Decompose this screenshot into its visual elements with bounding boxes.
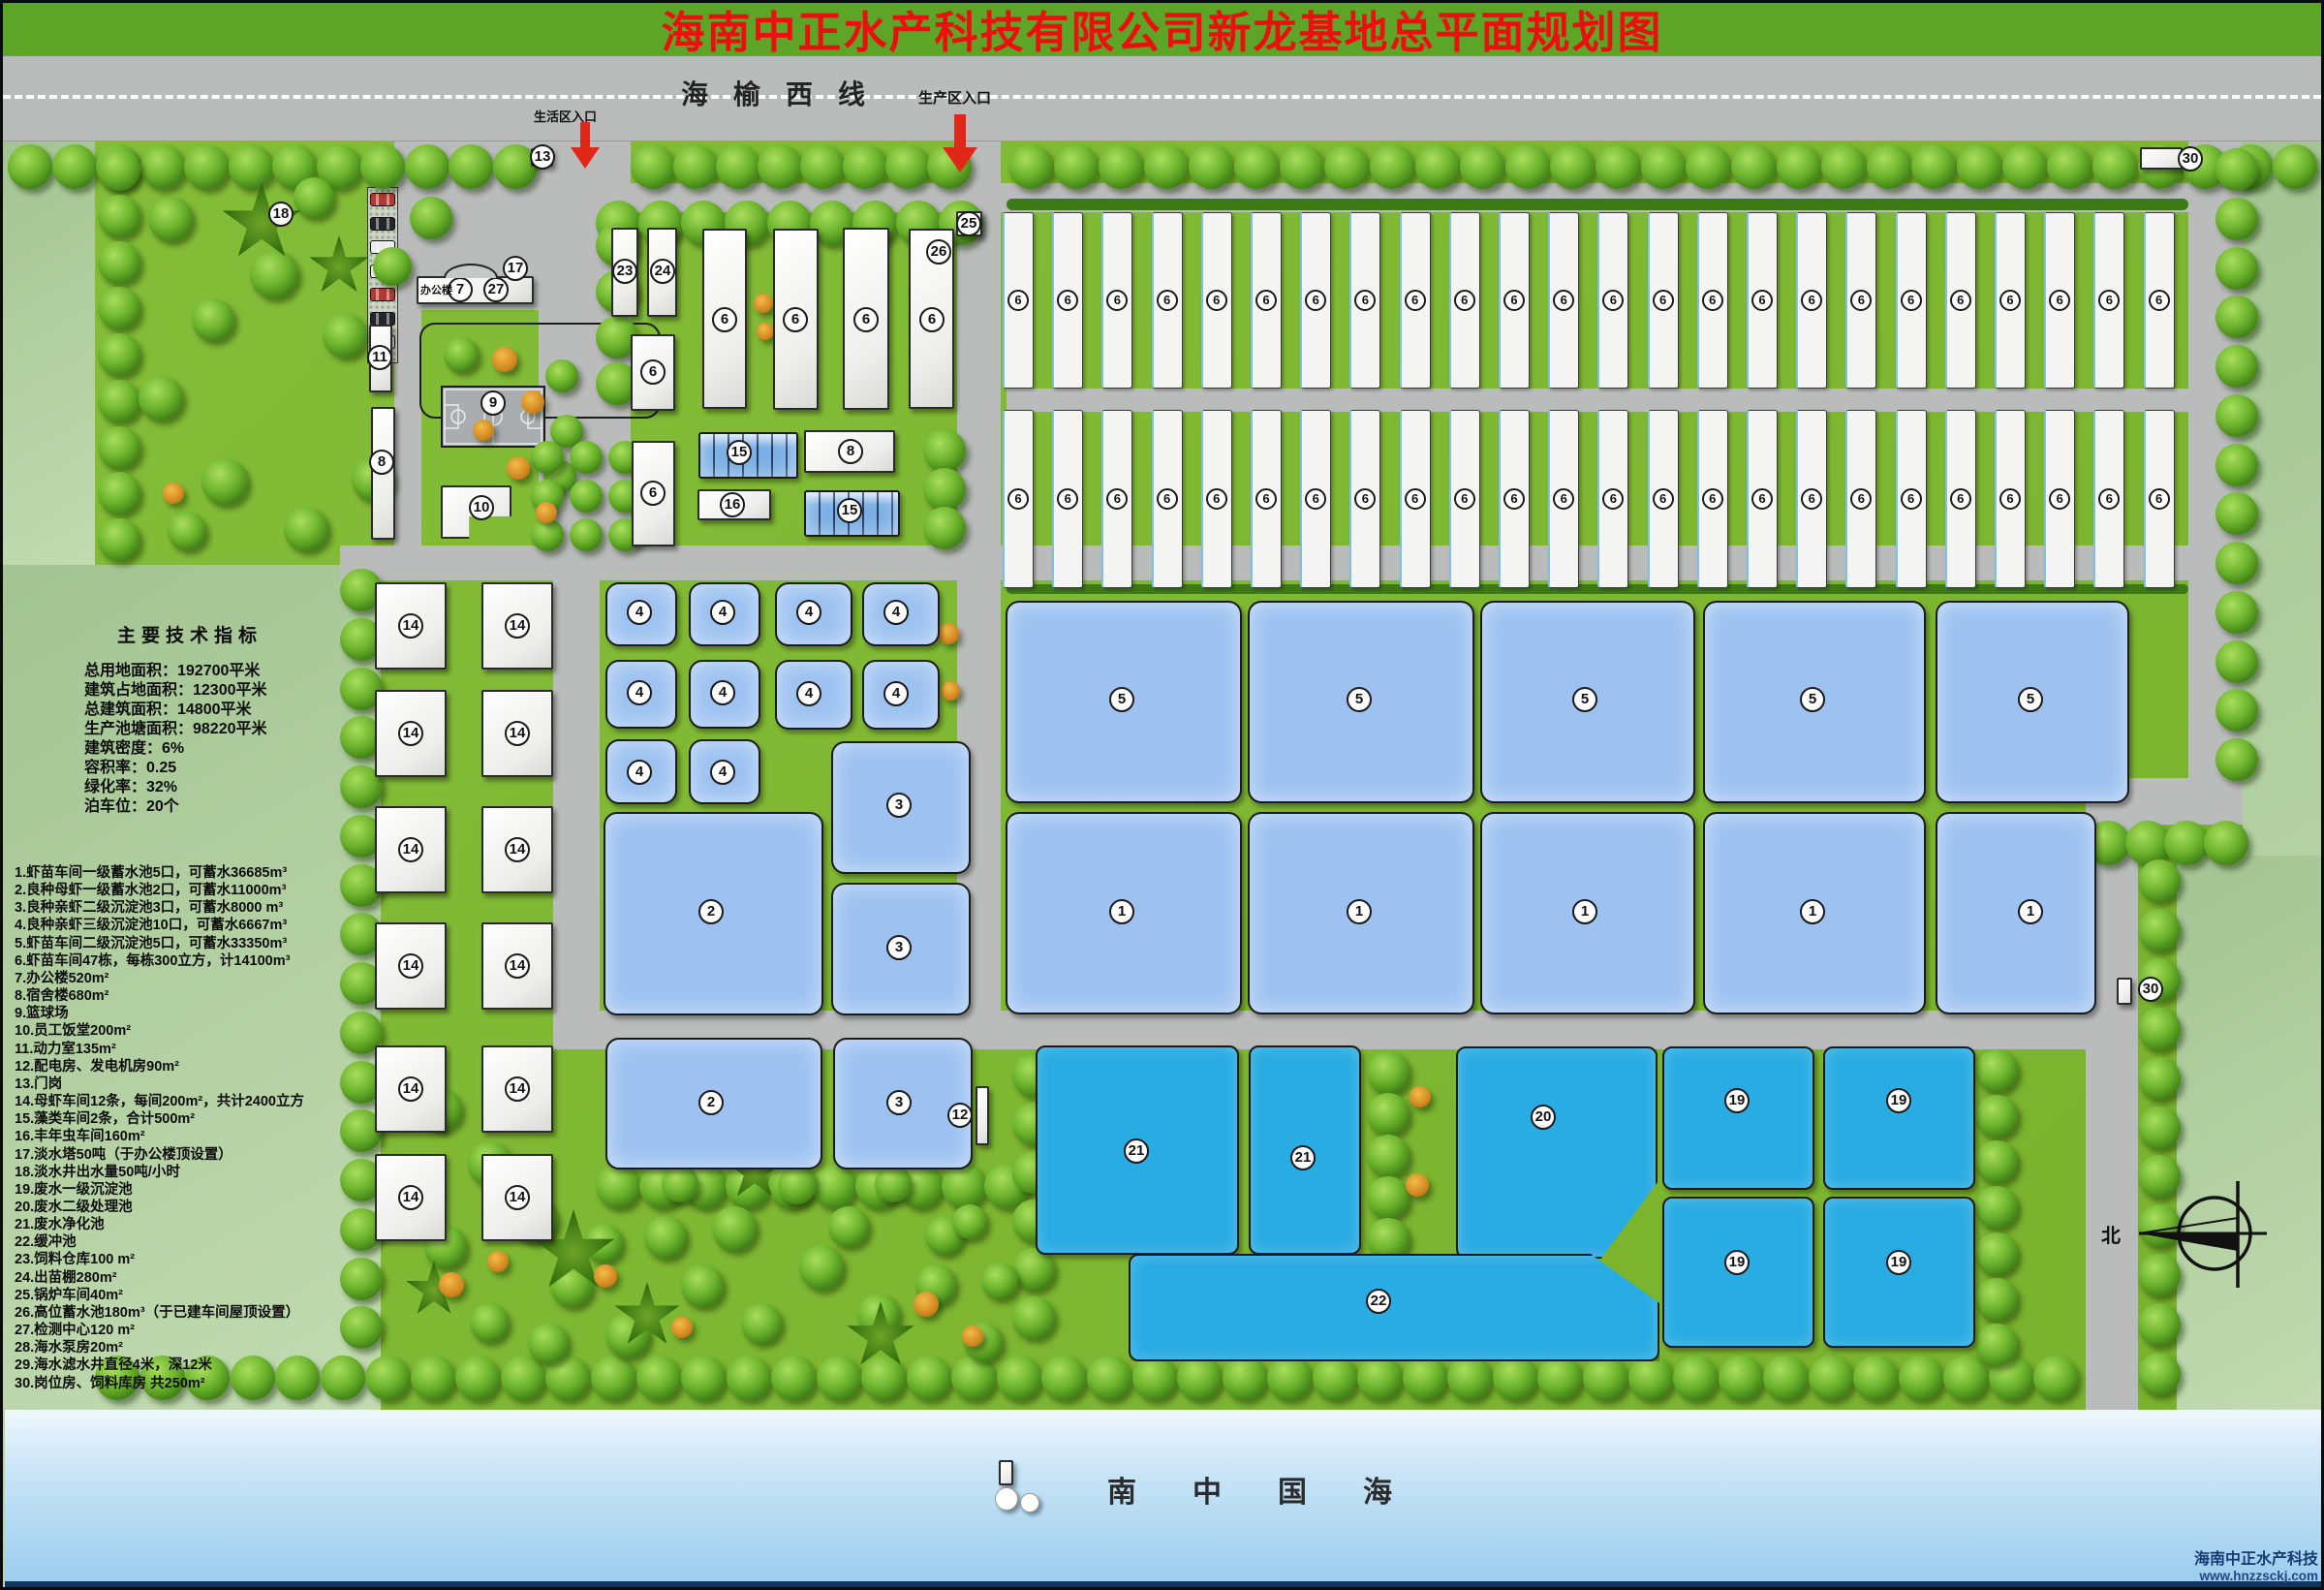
tree-icon — [2216, 591, 2258, 634]
car-icon — [370, 288, 395, 301]
indicator-line: 绿化率：32% — [84, 778, 375, 797]
car-icon — [370, 312, 395, 326]
map-label-13: 13 — [530, 144, 555, 170]
tree-icon — [570, 518, 603, 551]
map-label-6: 6 — [1901, 488, 1922, 510]
tree-icon — [1087, 1356, 1131, 1400]
wastewater-pond — [1823, 1046, 1975, 1190]
tree-icon — [1809, 1356, 1853, 1400]
map-label-30: 30 — [2178, 146, 2203, 171]
indicator-line: 泊车位：20个 — [84, 797, 375, 817]
tree-icon — [938, 623, 959, 644]
wastewater-pond — [1662, 1046, 1814, 1190]
map-label-6: 6 — [1206, 290, 1227, 311]
map-label-17: 17 — [503, 256, 528, 281]
map-label-5: 5 — [1572, 687, 1597, 712]
map-label-6: 6 — [2098, 290, 2120, 311]
road-vertical-west-ponds — [553, 546, 600, 1049]
tree-icon — [373, 247, 412, 286]
tree-icon — [2138, 909, 2181, 951]
tree-icon — [2138, 1303, 2181, 1346]
map-label-3: 3 — [886, 1090, 912, 1115]
tree-icon — [521, 390, 544, 414]
map-label-6: 6 — [1405, 290, 1426, 311]
indicator-line: 生产池塘面积：98220平米 — [84, 720, 375, 739]
tree-icon — [673, 144, 718, 189]
tree-icon — [1460, 144, 1504, 189]
tree-icon — [771, 1356, 816, 1400]
entrance-label-production: 生产区入口 — [918, 87, 991, 108]
legend-item: 5.虾苗车间二级沉淀池5口，可蓄水33350m³ — [15, 935, 383, 952]
legend-item: 28.海水泵房20m² — [15, 1339, 383, 1356]
legend-item: 2.良种母虾一级蓄水池2口，可蓄水11000m³ — [15, 882, 383, 899]
tree-icon — [411, 1356, 455, 1400]
tree-icon — [712, 1206, 757, 1251]
map-label-14: 14 — [398, 837, 423, 862]
building-generator-room — [976, 1086, 989, 1145]
tree-icon — [439, 1272, 464, 1297]
map-label-6: 6 — [1950, 290, 1971, 311]
map-label-6: 6 — [1653, 488, 1674, 510]
tree-icon — [1821, 144, 1866, 189]
map-label-6: 6 — [1106, 488, 1128, 510]
map-label-18: 18 — [268, 202, 294, 227]
tree-icon — [923, 507, 966, 549]
tree-icon — [1410, 1086, 1431, 1107]
tree-icon — [8, 144, 52, 189]
road-horizontal-south — [600, 1011, 2138, 1049]
building-guard-feed-store — [2140, 147, 2183, 170]
legend-item: 11.动力室135m² — [15, 1041, 383, 1058]
map-label-6: 6 — [1454, 488, 1475, 510]
tree-icon — [1686, 144, 1730, 189]
tree-icon — [192, 298, 234, 341]
tree-icon — [294, 177, 334, 218]
tree-icon — [727, 1356, 771, 1400]
tree-icon — [962, 1325, 983, 1347]
tree-icon — [444, 337, 479, 372]
map-label-14: 14 — [505, 1185, 530, 1210]
map-label-8: 8 — [369, 450, 394, 475]
tree-icon — [2216, 738, 2258, 781]
tree-icon — [907, 1356, 951, 1400]
brand-company: 海南中正水产科技 — [2086, 1551, 2318, 1568]
tree-icon — [98, 241, 140, 284]
tree-icon — [981, 1263, 1018, 1299]
tree-icon — [284, 507, 328, 551]
map-label-6: 6 — [1702, 488, 1723, 510]
tree-icon — [2138, 1057, 2181, 1100]
indicator-line: 总建筑面积：14800平米 — [84, 701, 375, 720]
tree-icon — [758, 144, 802, 189]
filter-well — [1020, 1493, 1039, 1512]
map-label-4: 4 — [710, 600, 735, 625]
tree-icon — [148, 197, 193, 241]
map-label-10: 10 — [469, 495, 494, 520]
legend-item: 29.海水滤水井直径4米，深12米 — [15, 1356, 383, 1374]
tree-icon — [2164, 821, 2209, 865]
legend-item: 24.出苗棚280m² — [15, 1269, 383, 1287]
tree-icon — [1583, 1356, 1627, 1400]
map-label-14: 14 — [505, 721, 530, 746]
map-label-6: 6 — [853, 307, 879, 332]
tree-icon — [1777, 144, 1821, 189]
map-label-22: 22 — [1366, 1289, 1391, 1314]
tree-icon — [1975, 1232, 2018, 1275]
tree-icon — [757, 323, 774, 340]
tree-icon — [594, 1264, 617, 1288]
tree-icon — [843, 144, 887, 189]
tree-icon — [716, 144, 760, 189]
tree-icon — [98, 148, 140, 191]
map-label-6: 6 — [712, 307, 737, 332]
tree-icon — [52, 144, 97, 189]
pond — [1936, 812, 2096, 1014]
legend-item: 12.配电房、发电机房90m² — [15, 1058, 383, 1076]
tree-icon — [1975, 1140, 2018, 1183]
tree-icon — [545, 359, 578, 392]
map-label-6: 6 — [640, 359, 666, 385]
tree-icon — [741, 1303, 782, 1344]
tree-icon — [1403, 1356, 1447, 1400]
indicator-line: 建筑密度：6% — [84, 739, 375, 759]
tree-icon — [1505, 144, 1550, 189]
map-label-4: 4 — [796, 600, 821, 625]
map-label-14: 14 — [505, 1076, 530, 1102]
tree-icon — [570, 480, 603, 513]
map-label-14: 14 — [505, 613, 530, 639]
road-between-workshop-rows — [1007, 389, 2243, 412]
road-vertical-office — [394, 310, 421, 565]
legend-item: 26.高位蓄水池180m³（于已建车间屋顶设置） — [15, 1304, 383, 1322]
tree-icon — [1357, 1356, 1402, 1400]
map-label-9: 9 — [480, 390, 506, 416]
map-label-4: 4 — [883, 681, 909, 706]
tree-icon — [817, 1356, 861, 1400]
map-label-6: 6 — [1553, 290, 1574, 311]
legend-item: 23.饲料仓库100 m² — [15, 1251, 383, 1268]
map-label-26: 26 — [926, 239, 951, 265]
map-label-6: 6 — [1454, 290, 1475, 311]
tree-icon — [1234, 144, 1279, 189]
map-label-5: 5 — [1109, 687, 1134, 712]
legend-item: 20.废水二级处理池 — [15, 1199, 383, 1216]
map-label-6: 6 — [1653, 290, 1674, 311]
map-label-12: 12 — [947, 1103, 973, 1128]
tree-icon — [1054, 144, 1099, 189]
tree-icon — [487, 1251, 509, 1272]
site-plan-canvas: 6666666666666666666666666666666666666666… — [0, 0, 2324, 1590]
tree-icon — [323, 313, 367, 358]
tree-icon — [1957, 144, 2001, 189]
legend-item: 19.废水一级沉淀池 — [15, 1181, 383, 1199]
legend-item: 14.母虾车间12条，每间200m²，共计2400立方 — [15, 1093, 383, 1110]
tree-icon — [2002, 144, 2047, 189]
tree-icon — [2125, 821, 2170, 865]
tree-icon — [828, 1206, 869, 1247]
tree-icon — [1313, 1356, 1357, 1400]
legend-item: 3.良种亲虾二级沉淀池3口，可蓄水8000 m³ — [15, 899, 383, 917]
tree-icon — [952, 1204, 987, 1239]
map-label-6: 6 — [1751, 290, 1773, 311]
compass-north-label: 北 — [2101, 1220, 2121, 1248]
tree-icon — [1144, 144, 1189, 189]
map-label-6: 6 — [1503, 488, 1525, 510]
map-label-2: 2 — [698, 899, 724, 924]
tree-icon — [1975, 1049, 2018, 1092]
map-label-1: 1 — [1109, 899, 1134, 924]
indicators-list: 总用地面积：192700平米建筑占地面积：12300平米总建筑面积：14800平… — [84, 662, 375, 817]
map-label-6: 6 — [2049, 290, 2070, 311]
map-label-6: 6 — [1157, 488, 1178, 510]
map-label-24: 24 — [650, 259, 675, 284]
map-label-6: 6 — [1354, 488, 1376, 510]
tree-icon — [531, 518, 564, 551]
map-label-14: 14 — [398, 1185, 423, 1210]
map-label-4: 4 — [627, 680, 652, 705]
tree-icon — [1899, 1356, 1943, 1400]
tree-icon — [2216, 345, 2258, 388]
car-icon — [370, 217, 395, 231]
tree-icon — [1367, 1135, 1410, 1177]
map-label-5: 5 — [2018, 687, 2043, 712]
tree-icon — [941, 681, 960, 701]
map-label-14: 14 — [398, 721, 423, 746]
tree-icon — [875, 1166, 912, 1202]
sea-name: 南中国海 — [1107, 1468, 1448, 1511]
map-label-6: 6 — [1255, 488, 1277, 510]
tree-icon — [98, 426, 140, 469]
tree-icon — [662, 1166, 698, 1202]
map-label-4: 4 — [710, 760, 735, 785]
tree-icon — [1763, 1356, 1808, 1400]
tree-icon — [2138, 1353, 2181, 1395]
tree-icon — [1415, 144, 1460, 189]
tree-icon — [98, 380, 140, 422]
map-label-6: 6 — [2149, 290, 2170, 311]
map-label-1: 1 — [2018, 899, 2043, 924]
legend-item: 6.虾苗车间47栋，每栋300立方，计14100m³ — [15, 952, 383, 970]
tree-icon — [531, 441, 564, 474]
tree-icon — [596, 1164, 640, 1208]
tree-icon — [1975, 1095, 2018, 1138]
map-label-6: 6 — [1801, 488, 1822, 510]
map-label-19: 19 — [1886, 1250, 1911, 1275]
entrance-arrow-living-icon — [571, 122, 600, 171]
tree-icon — [2216, 247, 2258, 290]
map-label-4: 4 — [627, 600, 652, 625]
map-label-6: 6 — [1850, 488, 1872, 510]
map-label-19: 19 — [1886, 1088, 1911, 1113]
map-label-20: 20 — [1531, 1105, 1556, 1130]
legend-item: 7.办公楼520m² — [15, 970, 383, 987]
map-label-2: 2 — [698, 1090, 724, 1115]
tree-icon — [1406, 1173, 1429, 1197]
indicator-line: 建筑占地面积：12300平米 — [84, 681, 375, 701]
map-label-14: 14 — [505, 837, 530, 862]
legend-item: 16.丰年虫车间160m² — [15, 1128, 383, 1145]
map-label-15: 15 — [727, 440, 752, 465]
tree-icon — [681, 1264, 724, 1307]
legend-item: 9.篮球场 — [15, 1005, 383, 1022]
map-label-6: 6 — [2049, 488, 2070, 510]
tree-icon — [501, 1356, 545, 1400]
tree-icon — [636, 1356, 681, 1400]
map-label-4: 4 — [627, 760, 652, 785]
tree-icon — [470, 1303, 509, 1342]
tree-icon — [671, 1317, 693, 1338]
tree-icon — [360, 144, 405, 189]
legend-item: 18.淡水井出水量50吨/小时 — [15, 1164, 383, 1181]
map-label-6: 6 — [1553, 488, 1574, 510]
map-label-21: 21 — [1124, 1138, 1149, 1164]
map-label-6: 6 — [1007, 488, 1029, 510]
tree-icon — [1596, 144, 1640, 189]
legend-item: 13.门岗 — [15, 1076, 383, 1093]
map-label-1: 1 — [1572, 899, 1597, 924]
outside-area-top-left — [3, 140, 95, 567]
tree-icon — [1673, 1356, 1718, 1400]
car-icon — [370, 193, 395, 206]
map-label-6: 6 — [1503, 290, 1525, 311]
legend-item: 25.锅炉车间40m² — [15, 1287, 383, 1304]
highway-name: 海榆西线 — [681, 74, 890, 112]
map-label-6: 6 — [1602, 290, 1624, 311]
wastewater-pond — [1129, 1254, 1659, 1361]
tree-icon — [410, 197, 452, 239]
tree-icon — [1867, 144, 1911, 189]
map-label-14: 14 — [505, 953, 530, 979]
map-label-19: 19 — [1724, 1088, 1750, 1113]
map-label-6: 6 — [783, 307, 808, 332]
tree-icon — [914, 1292, 939, 1317]
map-label-6: 6 — [1354, 290, 1376, 311]
map-label-19: 19 — [1724, 1250, 1750, 1275]
legend-item: 15.藻类车间2条，合计500m² — [15, 1110, 383, 1128]
map-label-1: 1 — [1347, 899, 1372, 924]
tree-icon — [644, 1216, 687, 1259]
tree-icon — [923, 468, 966, 511]
tree-icon — [923, 429, 966, 472]
tree-icon — [778, 1166, 817, 1204]
map-label-6: 6 — [1999, 290, 2021, 311]
legend-list: 1.虾苗车间一级蓄水池5口，可蓄水36685m³2.良种母虾一级蓄水池2口，可蓄… — [15, 864, 383, 1392]
filter-well — [995, 1487, 1018, 1511]
map-label-6: 6 — [1157, 290, 1178, 311]
tree-icon — [2138, 859, 2181, 902]
map-label-6: 6 — [1007, 290, 1029, 311]
map-label-6: 6 — [640, 481, 666, 506]
indicator-line: 容积率：0.25 — [84, 759, 375, 778]
tree-icon — [2138, 1008, 2181, 1050]
map-label-1: 1 — [1800, 899, 1825, 924]
tree-icon — [591, 1356, 635, 1400]
highway: 海榆西线 生活区入口 生产区入口 — [3, 56, 2321, 141]
tree-icon — [98, 333, 140, 376]
tree-icon — [1099, 144, 1143, 189]
tree-icon — [942, 1164, 986, 1208]
tree-icon — [1719, 1356, 1763, 1400]
tree-icon — [812, 1164, 856, 1208]
tree-icon — [449, 144, 493, 189]
tree-icon — [681, 1356, 726, 1400]
legend-item: 30.岗位房、饲料库房 共250m² — [15, 1375, 383, 1392]
map-label-14: 14 — [398, 613, 423, 639]
map-label-4: 4 — [710, 680, 735, 705]
legend-item: 21.废水净化池 — [15, 1216, 383, 1233]
tree-icon — [2092, 144, 2137, 189]
legend-item: 4.良种亲虾三级沉淀池10口，可蓄水6667m³ — [15, 917, 383, 934]
map-label-6: 6 — [1901, 290, 1922, 311]
tree-icon — [492, 347, 517, 372]
hedge-row — [1007, 199, 2188, 210]
map-label-5: 5 — [1347, 687, 1372, 712]
tree-icon — [631, 144, 675, 189]
tree-icon — [1367, 1176, 1410, 1219]
highway-center-line — [3, 95, 2321, 99]
tree-icon — [229, 144, 273, 189]
building-guard-feed-store — [2117, 978, 2132, 1005]
tree-icon — [168, 512, 206, 550]
map-label-6: 6 — [1057, 290, 1078, 311]
tree-icon — [1641, 144, 1686, 189]
entrance-arrow-production-icon — [943, 114, 977, 174]
tree-icon — [2216, 198, 2258, 240]
tree-icon — [1367, 1093, 1410, 1136]
tree-icon — [98, 518, 140, 561]
map-label-6: 6 — [1751, 488, 1773, 510]
tree-icon — [2216, 640, 2258, 683]
tree-icon — [1008, 144, 1053, 189]
map-label-6: 6 — [1702, 290, 1723, 311]
map-label-3: 3 — [886, 935, 912, 960]
map-label-15: 15 — [837, 498, 862, 523]
tree-icon — [2216, 296, 2258, 338]
tree-icon — [800, 144, 845, 189]
plan-title: 海南中正水产科技有限公司新龙基地总平面规划图 — [661, 0, 1662, 60]
tree-icon — [2204, 821, 2248, 865]
legend-item: 10.员工饭堂200m² — [15, 1022, 383, 1040]
tree-icon — [528, 1323, 569, 1363]
tree-icon — [2216, 394, 2258, 437]
tree-icon — [1370, 144, 1414, 189]
map-label-21: 21 — [1290, 1145, 1316, 1170]
map-label-8: 8 — [838, 439, 863, 464]
tree-icon — [163, 483, 184, 504]
map-label-6: 6 — [1602, 488, 1624, 510]
map-label-6: 6 — [1305, 488, 1326, 510]
tree-icon — [405, 144, 449, 189]
tree-icon — [473, 420, 494, 441]
indicators-title: 主要技术指标 — [117, 621, 263, 647]
map-label-4: 4 — [796, 681, 821, 706]
title-bar: 海南中正水产科技有限公司新龙基地总平面规划图 — [3, 3, 2321, 56]
legend-item: 27.检测中心120 m² — [15, 1322, 383, 1339]
legend-item: 8.宿舍楼680m² — [15, 987, 383, 1005]
map-label-16: 16 — [720, 492, 745, 517]
map-label-3: 3 — [886, 793, 912, 818]
map-label-6: 6 — [1405, 488, 1426, 510]
tree-icon — [98, 287, 140, 329]
tree-icon — [140, 144, 185, 189]
tree-icon — [184, 144, 229, 189]
map-label-6: 6 — [1106, 290, 1128, 311]
tree-icon — [536, 502, 557, 523]
tree-icon — [1223, 1356, 1267, 1400]
tree-icon — [1975, 1324, 2018, 1366]
tree-icon — [201, 458, 248, 505]
tree-icon — [570, 441, 603, 474]
